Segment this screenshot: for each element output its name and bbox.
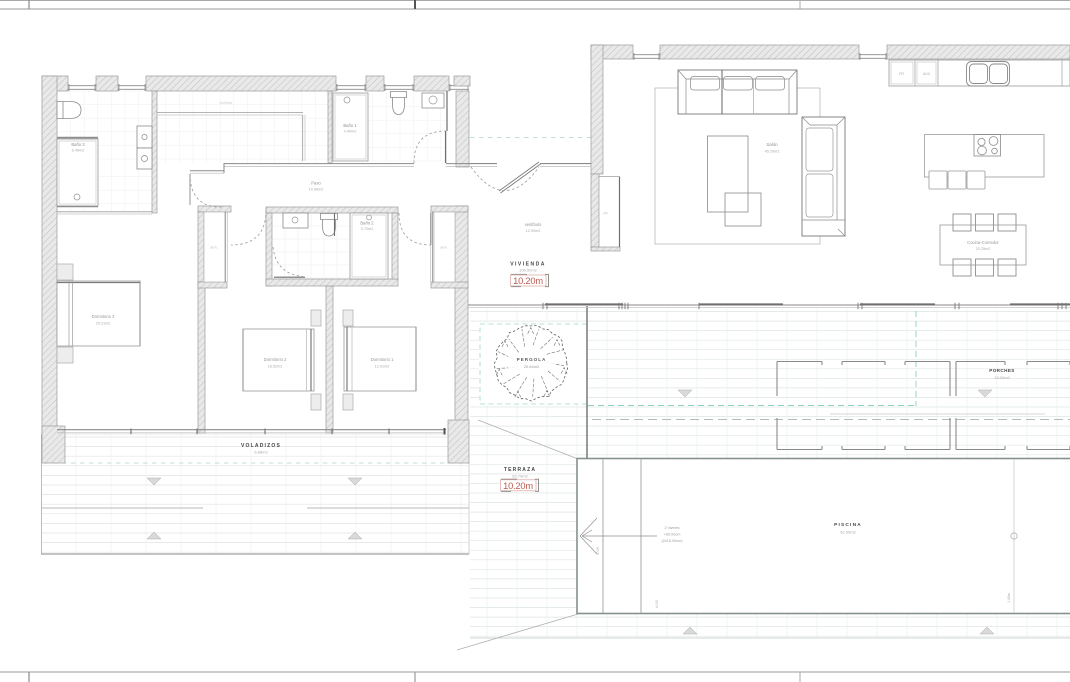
svg-text:+60.00cm: +60.00cm [664, 533, 681, 537]
svg-text:Dormitorio 1: Dormitorio 1 [371, 357, 394, 362]
svg-text:6.49m2: 6.49m2 [72, 149, 85, 153]
svg-text:12.91m2: 12.91m2 [375, 365, 390, 369]
svg-text:12.99m2: 12.99m2 [526, 229, 541, 233]
svg-text:(2x15.00cm): (2x15.00cm) [661, 539, 683, 543]
svg-text:Baño 3: Baño 3 [71, 142, 85, 147]
svg-text:20.21m2: 20.21m2 [96, 322, 111, 326]
svg-text:62.50m2: 62.50m2 [840, 530, 856, 535]
svg-text:10.20m: 10.20m [503, 481, 533, 491]
svg-text:pa.: pa. [604, 211, 609, 215]
svg-text:105.50m2: 105.50m2 [519, 268, 538, 273]
svg-text:62.74m2: 62.74m2 [512, 474, 528, 479]
svg-text:Dormitorio 3: Dormitorio 3 [92, 314, 115, 319]
svg-text:Salón: Salón [766, 142, 778, 147]
svg-text:3.70m2: 3.70m2 [361, 227, 374, 231]
svg-text:Baño 2: Baño 2 [360, 221, 374, 226]
svg-text:16.52m2: 16.52m2 [268, 365, 283, 369]
svg-text:1.40m: 1.40m [1007, 593, 1011, 603]
svg-text:recibidor: recibidor [219, 101, 233, 105]
svg-text:±0.00: ±0.00 [596, 547, 600, 555]
svg-text:PISCINA: PISCINA [834, 522, 862, 528]
svg-text:2 niveles: 2 niveles [665, 526, 680, 530]
svg-text:AUX.: AUX. [923, 72, 931, 76]
svg-text:TERRAZA: TERRAZA [504, 467, 536, 473]
svg-text:10.90m2: 10.90m2 [309, 188, 324, 192]
svg-text:FR.: FR. [899, 72, 905, 76]
svg-text:6.88m2: 6.88m2 [254, 450, 268, 455]
svg-text:vestíbulo: vestíbulo [525, 222, 542, 227]
svg-text:Dormitorio 2: Dormitorio 2 [264, 357, 287, 362]
svg-text:10.20m: 10.20m [513, 276, 543, 286]
svg-text:arm.: arm. [440, 246, 447, 250]
svg-text:arm.: arm. [210, 246, 217, 250]
svg-text:PERGOLA: PERGOLA [517, 357, 547, 362]
svg-text:±0.00: ±0.00 [655, 600, 659, 608]
svg-text:Baño 1: Baño 1 [343, 123, 357, 128]
svg-text:4.40m2: 4.40m2 [344, 130, 357, 134]
svg-text:13.00m2: 13.00m2 [994, 375, 1010, 380]
svg-text:45.20m2: 45.20m2 [765, 150, 780, 154]
svg-text:20.64m2: 20.64m2 [524, 364, 540, 369]
svg-text:VOLADIZOS: VOLADIZOS [241, 443, 281, 449]
svg-text:Paso: Paso [311, 181, 321, 186]
svg-text:Cocina-Comedor: Cocina-Comedor [967, 240, 999, 245]
svg-text:PORCHES: PORCHES [989, 368, 1015, 373]
svg-text:22.25m2: 22.25m2 [976, 247, 991, 251]
